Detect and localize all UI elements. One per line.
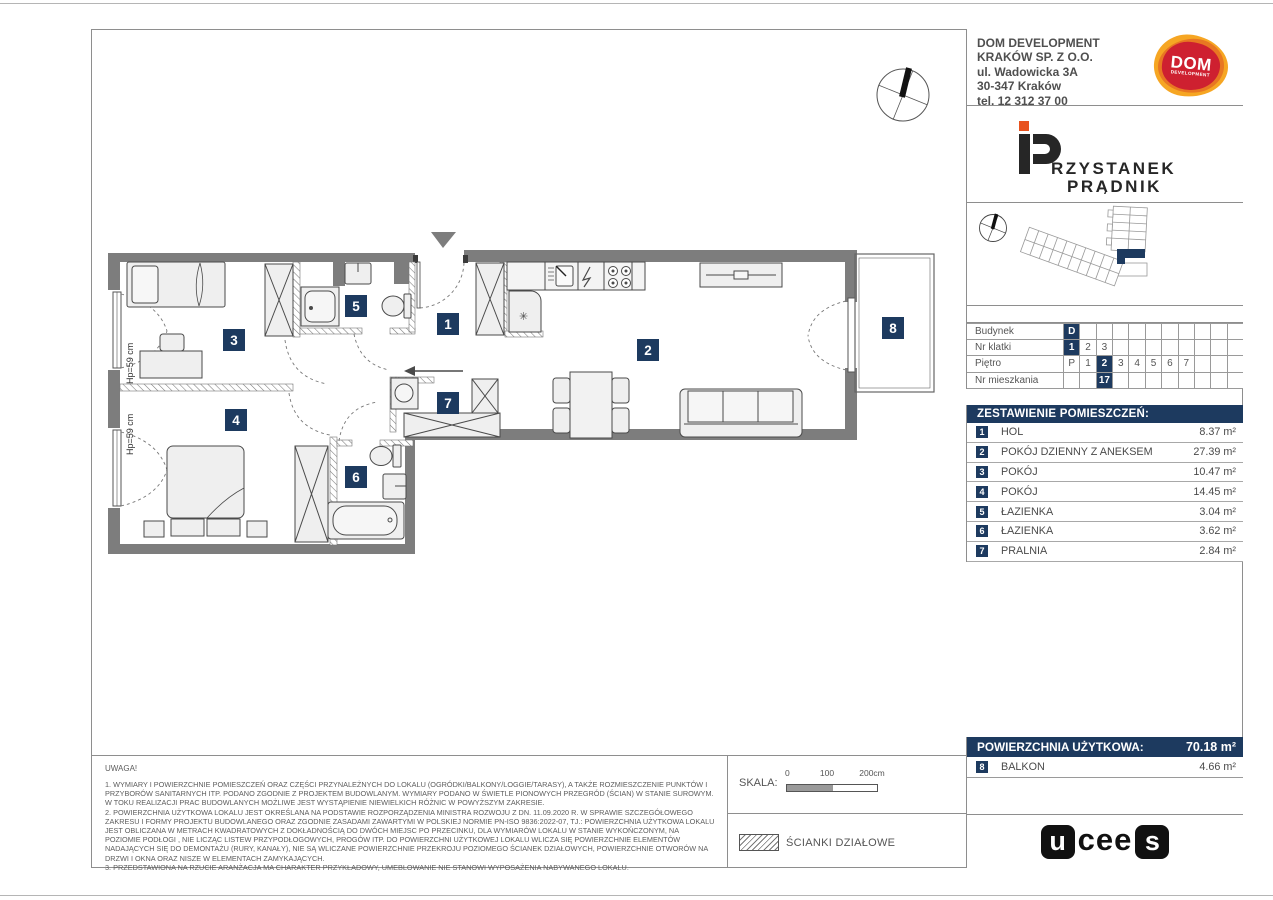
room4-wardrobe [295, 446, 328, 542]
usable-area-label: POWIERZCHNIA UŻYTKOWA: [977, 740, 1144, 754]
room-row: 4POKÓJ14.45 m² [967, 482, 1243, 502]
info-cell [1178, 340, 1194, 356]
info-cell: 1 [1063, 340, 1079, 356]
info-cell [1227, 324, 1243, 339]
info-row: Nr klatki123 [967, 340, 1243, 357]
info-cell [1112, 373, 1128, 389]
info-cell [1128, 340, 1144, 356]
info-cell [1210, 373, 1226, 389]
building-minimap [967, 203, 1244, 306]
rooms-table-body: 1HOL8.37 m²2POKÓJ DZIENNY Z ANEKSEM27.39… [967, 423, 1243, 562]
note-paragraph: 1. WYMIARY I POWIERZCHNIE POMIESZCZEŃ OR… [105, 780, 715, 808]
door-jambs [413, 255, 468, 263]
info-cell [1178, 324, 1194, 339]
company-address: DOM DEVELOPMENTKRAKÓW SP. Z O.O.ul. Wado… [977, 36, 1100, 108]
rooms-table: ZESTAWIENIE POMIESZCZEŃ: 1HOL8.37 m²2POK… [966, 405, 1243, 562]
info-cell: 2 [1096, 356, 1112, 372]
entry-door-leaf [417, 262, 420, 308]
floorplan-sheet: { "colors":{"navy":"#1d3a5f","wall":"#7d… [0, 0, 1273, 900]
balcony-row: 8 BALKON 4.66 m² [967, 757, 1243, 778]
info-cell [1194, 373, 1210, 389]
room-badge: 3 [976, 466, 988, 478]
partition-hatch-swatch [739, 834, 779, 851]
info-cell: D [1063, 324, 1079, 339]
svg-text:8: 8 [889, 321, 897, 336]
room-area: 8.37 m² [1199, 426, 1236, 438]
info-cell: 17 [1096, 373, 1112, 389]
info-row: BudynekD [967, 323, 1243, 340]
company-address-line: DOM DEVELOPMENT [977, 36, 1100, 50]
svg-text:7: 7 [444, 396, 452, 411]
room-name: POKÓJ DZIENNY Z ANEKSEM [998, 446, 1193, 458]
sofa [680, 389, 802, 437]
room3-bed [127, 262, 225, 307]
svg-text:Hp=59 cm: Hp=59 cm [125, 343, 135, 384]
room-area: 3.62 m² [1199, 525, 1236, 537]
notes-body: 1. WYMIARY I POWIERZCHNIE POMIESZCZEŃ OR… [105, 780, 715, 872]
note-paragraph: 3. PRZEDSTAWIONA NA RZUCIE ARANŻACJA MA … [105, 863, 715, 872]
room-area: 3.04 m² [1199, 506, 1236, 518]
info-cell: 3 [1096, 340, 1112, 356]
info-cell: 5 [1145, 356, 1161, 372]
floor-plan-svg: ✳ 1 2 3 4 5 6 7 [91, 29, 966, 755]
balcony-area: 4.66 m² [1199, 761, 1236, 773]
info-cell [1112, 340, 1128, 356]
scale-label: SKALA: [739, 777, 778, 789]
room-badge: 1 [976, 426, 988, 438]
info-row: PiętroP1234567 [967, 356, 1243, 373]
info-cell [1227, 356, 1243, 372]
info-cell [1161, 324, 1177, 339]
info-cell [1161, 340, 1177, 356]
balcony-name: BALKON [998, 761, 1199, 773]
room3-wardrobe [265, 264, 293, 336]
svg-text:✳: ✳ [519, 311, 528, 323]
entrance-marker [431, 232, 456, 248]
room-row: 3POKÓJ10.47 m² [967, 463, 1243, 483]
room5-shower [301, 287, 339, 326]
ucees-u: u [1041, 825, 1075, 859]
vent-arrow-icon [404, 366, 463, 376]
info-cell [1128, 324, 1144, 339]
room-badge: 7 [976, 545, 988, 557]
scale-tick-200: 200cm [859, 768, 885, 778]
minimap-building [1020, 206, 1147, 286]
info-cell: 6 [1161, 356, 1177, 372]
location-map-box [966, 203, 1243, 306]
partition-legend-label: ŚCIANKI DZIAŁOWE [786, 837, 895, 849]
ucees-logo: u cee s [1041, 822, 1170, 862]
balcony-badge: 8 [976, 761, 988, 773]
scale-tick-100: 100 [820, 768, 834, 778]
spacer-row [966, 306, 1243, 323]
dom-development-logo: DOM DEVELOPMENT [1150, 33, 1232, 101]
scale-box: SKALA: 0 100 200cm [727, 755, 966, 813]
info-cell: 3 [1112, 356, 1128, 372]
info-cell [1194, 356, 1210, 372]
info-row: Nr mieszkania17 [967, 373, 1243, 390]
room-badge: 6 [976, 525, 988, 537]
info-cell [1079, 373, 1095, 389]
info-cell [1227, 373, 1243, 389]
ucees-cee: cee [1076, 822, 1135, 862]
compass-icon [869, 61, 937, 129]
room7-washing-machine [391, 378, 418, 409]
scale-tick-0: 0 [785, 768, 790, 778]
company-address-line: ul. Wadowicka 3A [977, 65, 1100, 79]
note-paragraph: 2. POWIERZCHNIA UŻYTKOWA LOKALU JEST OKR… [105, 808, 715, 863]
info-cell [1210, 324, 1226, 339]
room-name: PRALNIA [998, 545, 1199, 557]
hol-wardrobe [476, 263, 504, 335]
info-cell [1178, 373, 1194, 389]
room-row: 6ŁAZIENKA3.62 m² [967, 522, 1243, 542]
info-cell: 4 [1128, 356, 1144, 372]
minimap-compass-icon [975, 210, 1010, 245]
room-row: 7PRALNIA2.84 m² [967, 542, 1243, 562]
room-row: 2POKÓJ DZIENNY Z ANEKSEM27.39 m² [967, 443, 1243, 463]
room-area: 14.45 m² [1193, 486, 1236, 498]
info-row-label: Budynek [967, 324, 1063, 339]
company-address-line: 30-347 Kraków [977, 79, 1100, 93]
usable-area-value: 70.18 m² [1186, 740, 1236, 754]
info-cell [1096, 324, 1112, 339]
info-cell: 1 [1079, 356, 1095, 372]
room-name: POKÓJ [998, 466, 1193, 478]
logo-line2: PRĄDNIK [1067, 177, 1162, 194]
info-table: BudynekDNr klatki123PiętroP1234567Nr mie… [966, 323, 1243, 389]
svg-text:5: 5 [352, 299, 360, 314]
room6-washbasin [383, 474, 406, 499]
notes-title: UWAGA! [105, 764, 715, 773]
info-cell [1145, 324, 1161, 339]
room-badge: 4 [976, 486, 988, 498]
ucees-s: s [1135, 825, 1169, 859]
przystanek-pradnik-logo: RZYSTANEK PRĄDNIK [1009, 120, 1199, 194]
info-cell [1227, 340, 1243, 356]
kitchen-fridge: ✳ [509, 291, 541, 332]
partition-legend-box: ŚCIANKI DZIAŁOWE [727, 813, 966, 868]
room-area: 10.47 m² [1193, 466, 1236, 478]
tv-cabinet [700, 263, 782, 287]
page-bottom-line [0, 895, 1273, 896]
room-row: 1HOL8.37 m² [967, 423, 1243, 443]
info-cell [1079, 324, 1095, 339]
svg-text:6: 6 [352, 470, 360, 485]
dining-table [553, 372, 629, 438]
info-cell [1145, 373, 1161, 389]
minimap-unit-highlight [1117, 249, 1145, 264]
info-cell [1145, 340, 1161, 356]
room-row: 5ŁAZIENKA3.04 m² [967, 502, 1243, 522]
info-row-label: Piętro [967, 356, 1063, 372]
room6-toilet [370, 445, 401, 467]
spacer-row [966, 778, 1243, 815]
room-badge: 2 [976, 446, 988, 458]
info-cell [1063, 373, 1079, 389]
balcony-row-box: 8 BALKON 4.66 m² [966, 757, 1243, 778]
info-cell [1112, 324, 1128, 339]
room-area: 2.84 m² [1199, 545, 1236, 557]
info-cell: P [1063, 356, 1079, 372]
company-box: DOM DEVELOPMENTKRAKÓW SP. Z O.O.ul. Wado… [966, 29, 1243, 106]
info-cell: 7 [1178, 356, 1194, 372]
info-cell [1210, 356, 1226, 372]
furniture: ✳ [127, 254, 934, 542]
info-cell [1210, 340, 1226, 356]
room3-desk [140, 334, 202, 378]
window-height-labels: Hp=59 cm Hp=59 cm [125, 343, 135, 455]
room5-washbasin [345, 263, 371, 284]
room7-wardrobe-wide [404, 413, 500, 437]
info-row-label: Nr mieszkania [967, 373, 1063, 389]
project-logo-box: RZYSTANEK PRĄDNIK [966, 106, 1243, 203]
room4-bed [144, 446, 267, 537]
svg-text:3: 3 [230, 333, 238, 348]
room-name: ŁAZIENKA [998, 525, 1199, 537]
logo-line1: RZYSTANEK [1051, 159, 1176, 178]
room6-bathtub [328, 502, 404, 539]
ucees-logo-box: u cee s [966, 815, 1243, 868]
room-area: 27.39 m² [1193, 446, 1236, 458]
rooms-table-header: ZESTAWIENIE POMIESZCZEŃ: [967, 405, 1243, 423]
room-name: POKÓJ [998, 486, 1193, 498]
svg-text:1: 1 [444, 317, 452, 332]
svg-text:Hp=59 cm: Hp=59 cm [125, 414, 135, 455]
room-badge: 5 [976, 506, 988, 518]
company-address-line: KRAKÓW SP. Z O.O. [977, 50, 1100, 64]
page-top-line [0, 3, 1273, 4]
room-name: ŁAZIENKA [998, 506, 1199, 518]
info-cell [1128, 373, 1144, 389]
info-cell [1194, 324, 1210, 339]
notes-box: UWAGA! 1. WYMIARY I POWIERZCHNIE POMIESZ… [91, 755, 727, 868]
usable-area-bar: POWIERZCHNIA UŻYTKOWA: 70.18 m² [966, 737, 1243, 757]
room5-toilet [382, 294, 411, 318]
info-cell [1194, 340, 1210, 356]
scale-bar [786, 784, 878, 792]
svg-text:2: 2 [644, 343, 652, 358]
room-name: HOL [998, 426, 1199, 438]
logo-orange-square [1019, 121, 1029, 131]
info-row-label: Nr klatki [967, 340, 1063, 356]
info-cell: 2 [1079, 340, 1095, 356]
svg-text:4: 4 [232, 413, 240, 428]
room7-wardrobe-tall [472, 379, 498, 413]
info-cell [1161, 373, 1177, 389]
